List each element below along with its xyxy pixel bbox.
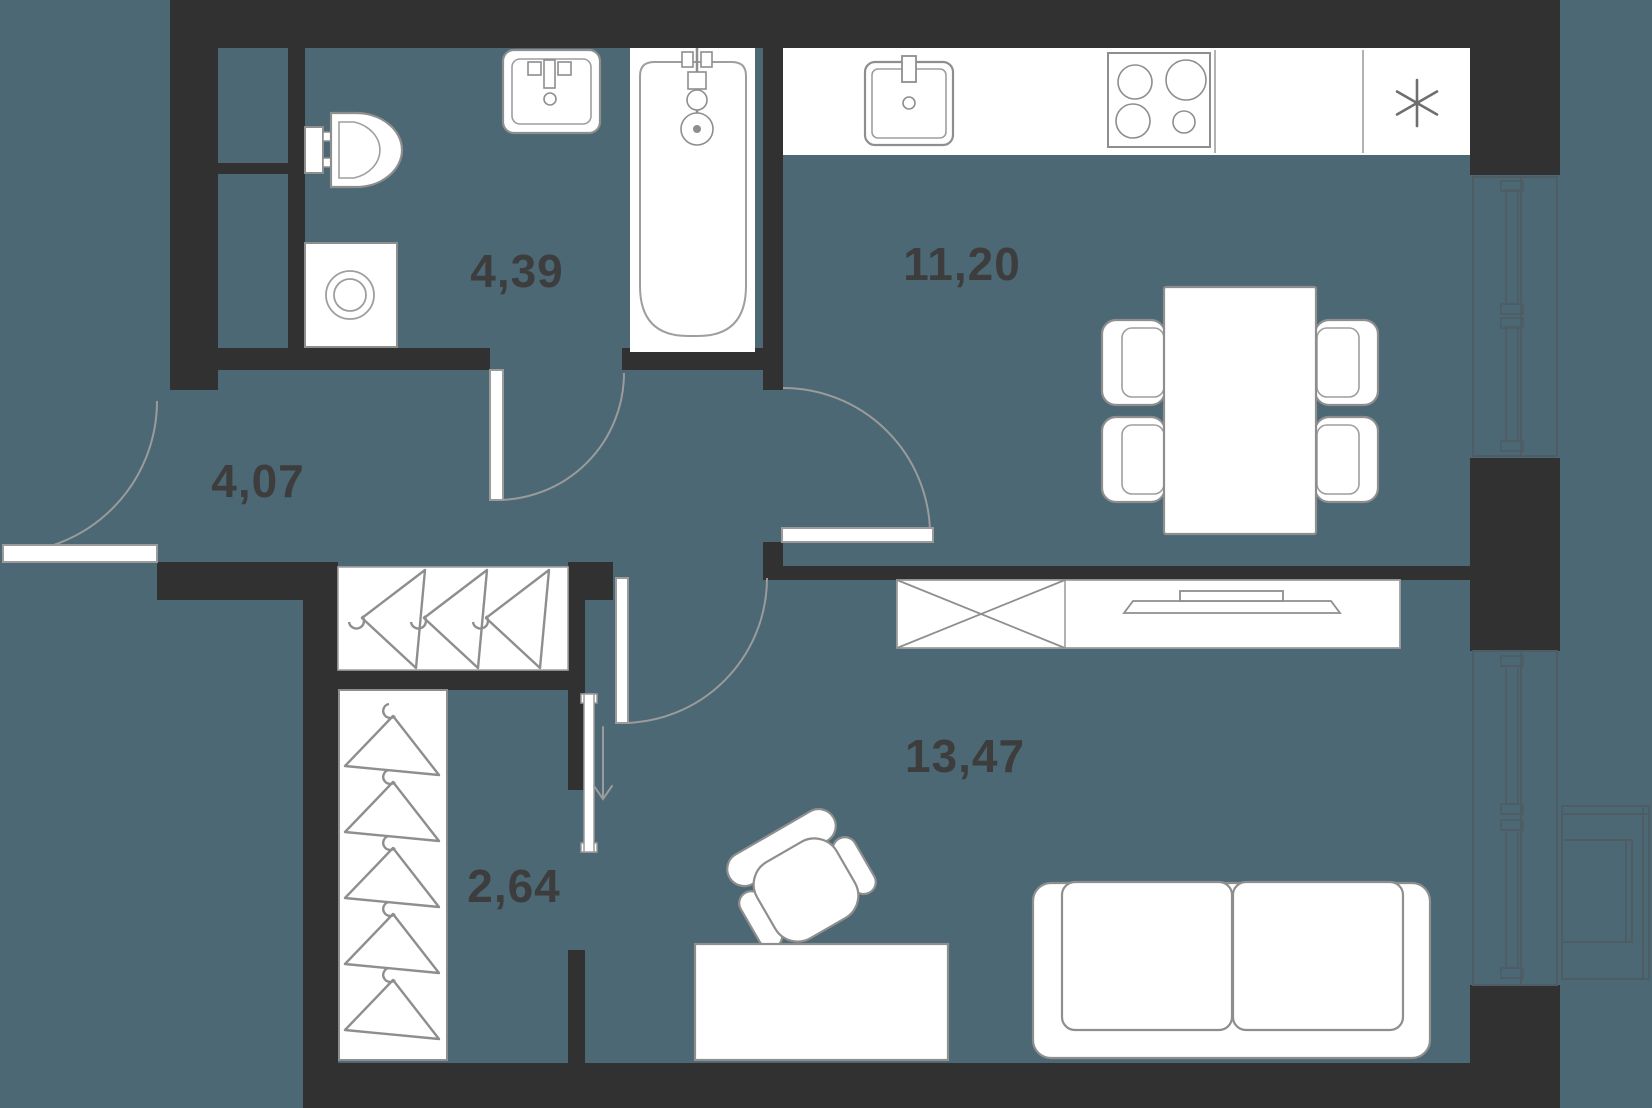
wall-wardrobe-left [303,600,338,1063]
wall-closet-bottom [338,670,583,690]
washing-machine-icon [305,243,397,347]
dining-chair [1102,417,1165,502]
wall-kitchen-living-divider [783,566,1470,580]
dining-chair [1102,320,1165,405]
wall-bath-kitchen [763,40,783,390]
room-label-bathroom: 4,39 [470,245,564,297]
tv-stand [897,580,1400,648]
room-label-kitchen: 11,20 [903,238,1021,290]
wall-bottom [303,1063,1560,1108]
desk [695,944,948,1060]
wall-left-infill [218,0,305,48]
wall-shaft-strip [288,48,305,368]
wall-top-right [1470,0,1560,175]
room-label-wardrobe: 2,64 [467,860,561,912]
dining-table [1164,287,1316,534]
dining-chair [1315,417,1378,502]
sofa [1033,882,1430,1058]
bathroom-sink-icon [503,50,600,133]
wall-left [170,0,218,390]
floor-plan: 4,39 11,20 4,07 2,64 13,47 [0,0,1652,1108]
wardrobe-cabinet [339,690,447,1060]
wall-hall-south [157,562,338,600]
room-label-hallway: 4,07 [211,455,305,507]
wall-right-mid [1470,458,1560,651]
bathtub-icon [630,48,755,352]
stove-icon [1108,53,1210,147]
wall-top [170,0,1470,48]
wall-wardrobe-right-lower [568,950,585,1063]
dining-chair [1315,320,1378,405]
hall-closet [338,567,568,670]
floor-plan-canvas: 4,39 11,20 4,07 2,64 13,47 [0,0,1652,1108]
wall-shaft-separator [218,163,288,174]
room-label-living-room: 13,47 [905,730,1025,782]
wall-kitchen-door-block [763,542,783,580]
kitchen-sink-icon [865,56,953,145]
wall-bath-south-left [170,348,490,370]
wall-hall-junction [568,562,613,600]
